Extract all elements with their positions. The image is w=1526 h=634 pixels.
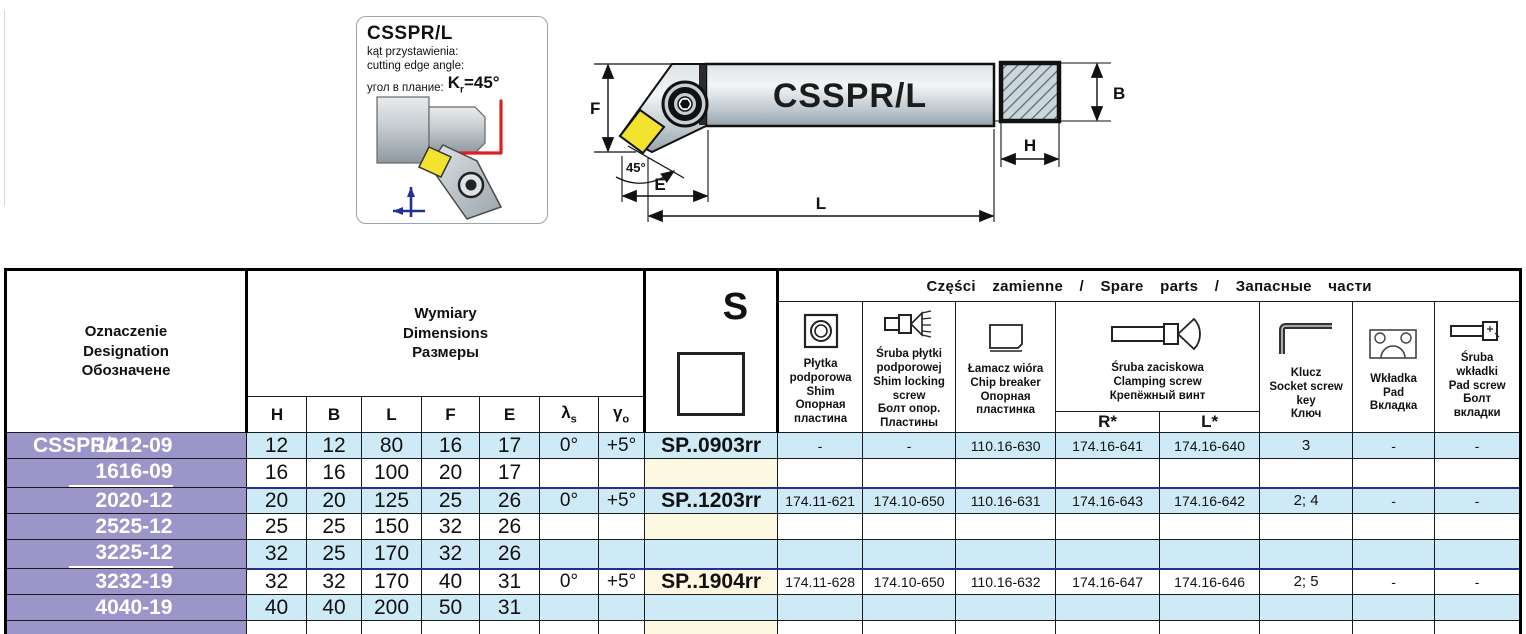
table-row: 3225-1232251703226 <box>6 540 1521 569</box>
cell-pad-screw <box>1435 514 1521 540</box>
cell-clamp-l: 174.16-642 <box>1160 488 1260 514</box>
cell-key <box>1260 621 1353 634</box>
designation-cell: 3232-19 <box>6 569 247 595</box>
cell-key: 2; 5 <box>1260 569 1353 595</box>
cell-ls <box>540 514 599 540</box>
cell-f: 40 <box>422 569 480 595</box>
cell-pad-screw: - <box>1435 433 1521 459</box>
cell-key <box>1260 459 1353 488</box>
cell-f: 50 <box>422 595 480 621</box>
cell-f: 25 <box>422 488 480 514</box>
cell-ls <box>540 621 599 634</box>
col-header-gamma: γo <box>599 397 645 433</box>
designation-cell: 2020-12 <box>6 488 247 514</box>
table-row <box>6 621 1521 634</box>
designation-value: 4040-19 <box>69 595 173 620</box>
col-header-b: B <box>307 397 362 433</box>
cell-shim-screw: - <box>863 433 956 459</box>
table-row: CSSPR/L1212-0912128016170°+5°SP..0903rr-… <box>6 433 1521 459</box>
cell-shim-screw <box>863 514 956 540</box>
cell-ls <box>540 595 599 621</box>
cell-b: 25 <box>307 540 362 569</box>
pad-icon <box>1367 326 1421 369</box>
cell-b: 16 <box>307 459 362 488</box>
cell-e: 17 <box>480 459 540 488</box>
shank-section-square <box>1001 63 1059 121</box>
cell-ls: 0° <box>540 488 599 514</box>
cell-shim-screw <box>863 540 956 569</box>
cell-shim: 174.11-621 <box>778 488 863 514</box>
shank-cross-section-drawing: B H <box>993 55 1143 180</box>
table-row: 4040-1940402005031 <box>6 595 1521 621</box>
cell-pad-screw <box>1435 540 1521 569</box>
col-header-lambda: λs <box>540 397 599 433</box>
cell-s <box>645 595 778 621</box>
pad-screw-icon <box>1449 319 1505 348</box>
cell-s <box>645 540 778 569</box>
cell-pad-screw <box>1435 621 1521 634</box>
designation-value: 1616-09 <box>69 459 173 487</box>
table-row: 1616-0916161002017 <box>6 459 1521 488</box>
cell-pad <box>1353 540 1435 569</box>
cell-h: 40 <box>247 595 307 621</box>
chip-breaker-column-header: Łamacz wióra Chip breaker Опорная пласти… <box>956 302 1056 433</box>
col-header-l: L <box>362 397 422 433</box>
cell-shim <box>778 514 863 540</box>
cell-pad <box>1353 621 1435 634</box>
pad-screw-column-header: Śruba wkładki Pad screw Болт вкладки <box>1435 302 1521 433</box>
cell-clamp-r <box>1056 459 1160 488</box>
cell-l: 150 <box>362 514 422 540</box>
cell-e: 26 <box>480 540 540 569</box>
cell-pad: - <box>1353 569 1435 595</box>
cell-clamp-l: 174.16-646 <box>1160 569 1260 595</box>
cell-l: 100 <box>362 459 422 488</box>
cell-pad <box>1353 459 1435 488</box>
col-header-l-star: L* <box>1160 412 1260 433</box>
cell-shim <box>778 595 863 621</box>
angle-45-label: 45° <box>626 160 646 175</box>
cell-h: 32 <box>247 540 307 569</box>
cell-go <box>599 514 645 540</box>
cell-chip-breaker <box>956 514 1056 540</box>
cell-clamp-r <box>1056 514 1160 540</box>
dim-b-label: B <box>1113 84 1125 103</box>
cell-ls <box>540 459 599 488</box>
holder-model-label: CSSPR/L <box>773 77 927 115</box>
cell-s <box>645 459 778 488</box>
cell-s: SP..1203rr <box>645 488 778 514</box>
cell-e: 31 <box>480 595 540 621</box>
cell-clamp-r <box>1056 540 1160 569</box>
cell-b: 25 <box>307 514 362 540</box>
col-header-e: E <box>480 397 540 433</box>
cell-shim <box>778 621 863 634</box>
brand-label: CSSPR/L <box>33 433 124 458</box>
socket-key-column-header: Klucz Socket screw key Ключ <box>1260 302 1353 433</box>
cell-go: +5° <box>599 488 645 514</box>
spare-parts-header: Części zamienne / Spare parts / Запасные… <box>778 270 1521 302</box>
cell-clamp-l <box>1160 459 1260 488</box>
cell-l: 200 <box>362 595 422 621</box>
cell-clamp-r <box>1056 621 1160 634</box>
info-box-title: CSSPR/L <box>367 23 539 45</box>
cell-b <box>307 621 362 634</box>
cell-pad-screw: - <box>1435 488 1521 514</box>
designation-value: 2020-12 <box>69 488 173 513</box>
designation-cell: 2525-12 <box>6 514 247 540</box>
shim-locking-screw-icon <box>883 309 935 344</box>
cell-go <box>599 595 645 621</box>
cell-s <box>645 514 778 540</box>
workpiece-small-cylinder <box>429 107 485 153</box>
col-header-f: F <box>422 397 480 433</box>
cell-go: +5° <box>599 569 645 595</box>
cell-shim-screw <box>863 621 956 634</box>
cell-clamp-r: 174.16-647 <box>1056 569 1160 595</box>
designation-cell: CSSPR/L1212-09 <box>6 433 247 459</box>
cell-clamp-l <box>1160 621 1260 634</box>
designation-cell: 3225-12 <box>6 540 247 569</box>
insert-shape-header: S <box>645 270 778 433</box>
cell-f: 32 <box>422 514 480 540</box>
cell-pad: - <box>1353 488 1435 514</box>
cell-go <box>599 621 645 634</box>
table-row: 3232-19323217040310°+5°SP..1904rr174.11-… <box>6 569 1521 595</box>
info-box: CSSPR/L kąt przystawienia: cutting edge … <box>356 16 548 224</box>
cell-e: 26 <box>480 488 540 514</box>
dim-h-label: H <box>1024 136 1036 155</box>
cell-b: 12 <box>307 433 362 459</box>
cell-l: 170 <box>362 540 422 569</box>
shim-column-header: Płytka podporowa Shim Опорная пластина <box>778 302 863 433</box>
cell-clamp-l: 174.16-640 <box>1160 433 1260 459</box>
dimensions-header: Wymiary Dimensions Размеры <box>247 270 645 397</box>
designation-cell: 1616-09 <box>6 459 247 488</box>
dim-e-label: E <box>654 175 665 194</box>
cell-clamp-r: 174.16-641 <box>1056 433 1160 459</box>
feed-direction-arrows <box>393 187 425 217</box>
cell-key <box>1260 540 1353 569</box>
cell-l <box>362 621 422 634</box>
cell-b: 32 <box>307 569 362 595</box>
page-edge-line <box>4 10 5 206</box>
cell-ls: 0° <box>540 569 599 595</box>
product-table: Oznaczenie Designation Обозначене Wymiar… <box>4 268 1522 634</box>
cell-go <box>599 540 645 569</box>
cell-shim-screw: 174.10-650 <box>863 569 956 595</box>
cell-chip-breaker <box>956 459 1056 488</box>
cutting-angle-value: Kr=45° <box>448 73 500 95</box>
cell-shim-screw <box>863 459 956 488</box>
table-row: 2525-1225251503226 <box>6 514 1521 540</box>
socket-screw-key-icon <box>1274 318 1338 363</box>
table-row: 2020-12202012525260°+5°SP..1203rr174.11-… <box>6 488 1521 514</box>
cell-l: 170 <box>362 569 422 595</box>
cell-clamp-r <box>1056 595 1160 621</box>
cell-shim <box>778 540 863 569</box>
cell-clamp-l <box>1160 595 1260 621</box>
cell-chip-breaker <box>956 621 1056 634</box>
designation-cell <box>6 621 247 634</box>
cell-s <box>645 621 778 634</box>
cell-shim: 174.11-628 <box>778 569 863 595</box>
cell-f: 20 <box>422 459 480 488</box>
cell-pad <box>1353 595 1435 621</box>
cell-clamp-l <box>1160 514 1260 540</box>
dim-f-label: F <box>590 99 600 118</box>
designation-header: Oznaczenie Designation Обозначене <box>6 270 247 433</box>
cell-h: 16 <box>247 459 307 488</box>
cell-chip-breaker: 110.16-632 <box>956 569 1056 595</box>
cell-l: 125 <box>362 488 422 514</box>
info-line-ru: угол в плание: <box>367 81 444 95</box>
cell-l: 80 <box>362 433 422 459</box>
shim-screw-column-header: Śruba płytki podporowej Shim locking scr… <box>863 302 956 433</box>
cell-h <box>247 621 307 634</box>
cell-s: SP..1904rr <box>645 569 778 595</box>
designation-value: 3232-19 <box>69 569 173 594</box>
cell-pad-screw: - <box>1435 569 1521 595</box>
cell-chip-breaker <box>956 540 1056 569</box>
cell-chip-breaker <box>956 595 1056 621</box>
cell-ls <box>540 540 599 569</box>
cell-chip-breaker: 110.16-631 <box>956 488 1056 514</box>
cell-go <box>599 459 645 488</box>
cell-h: 12 <box>247 433 307 459</box>
cell-f: 32 <box>422 540 480 569</box>
cell-go: +5° <box>599 433 645 459</box>
cell-chip-breaker: 110.16-630 <box>956 433 1056 459</box>
insert-shape-letter: S <box>723 287 748 327</box>
pad-column-header: Wkładka Pad Вкладка <box>1353 302 1435 433</box>
turning-operation-diagram <box>367 95 539 223</box>
cell-ls: 0° <box>540 433 599 459</box>
cell-shim <box>778 459 863 488</box>
cell-h: 25 <box>247 514 307 540</box>
dim-l-label: L <box>816 194 826 213</box>
designation-value: 3225-12 <box>69 540 173 568</box>
cell-h: 20 <box>247 488 307 514</box>
clamping-screw-column-header: Śruba zaciskowa Clamping screw Крепёжный… <box>1056 302 1260 412</box>
catalog-page: CSSPR/L kąt przystawienia: cutting edge … <box>0 0 1526 634</box>
cell-h: 32 <box>247 569 307 595</box>
cell-key <box>1260 514 1353 540</box>
workpiece-large-cylinder <box>377 97 429 163</box>
cell-pad-screw <box>1435 595 1521 621</box>
cell-b: 40 <box>307 595 362 621</box>
designation-cell: 4040-19 <box>6 595 247 621</box>
col-header-r-star: R* <box>1056 412 1160 433</box>
cell-pad <box>1353 514 1435 540</box>
shim-icon <box>802 313 840 354</box>
chip-breaker-icon <box>984 322 1028 359</box>
cell-e: 17 <box>480 433 540 459</box>
cell-e <box>480 621 540 634</box>
cell-key: 3 <box>1260 433 1353 459</box>
cell-shim: - <box>778 433 863 459</box>
cell-pad: - <box>1353 433 1435 459</box>
info-line-en: cutting edge angle: <box>367 59 539 73</box>
cell-e: 26 <box>480 514 540 540</box>
holder-side-view-drawing: CSSPR/L F 45° E L <box>588 50 1008 230</box>
cell-clamp-l <box>1160 540 1260 569</box>
col-header-h: H <box>247 397 307 433</box>
clamping-screw-icon <box>1106 315 1210 358</box>
designation-value: 2525-12 <box>69 514 173 539</box>
cell-f <box>422 621 480 634</box>
cell-s: SP..0903rr <box>645 433 778 459</box>
cell-pad-screw <box>1435 459 1521 488</box>
cell-key: 2; 4 <box>1260 488 1353 514</box>
cell-clamp-r: 174.16-643 <box>1056 488 1160 514</box>
cell-key <box>1260 595 1353 621</box>
cell-b: 20 <box>307 488 362 514</box>
info-line-pl: kąt przystawienia: <box>367 45 539 59</box>
clamp-ring-inner <box>466 180 477 191</box>
cell-f: 16 <box>422 433 480 459</box>
cell-shim-screw <box>863 595 956 621</box>
square-insert-icon <box>677 352 745 416</box>
cell-e: 31 <box>480 569 540 595</box>
cell-shim-screw: 174.10-650 <box>863 488 956 514</box>
